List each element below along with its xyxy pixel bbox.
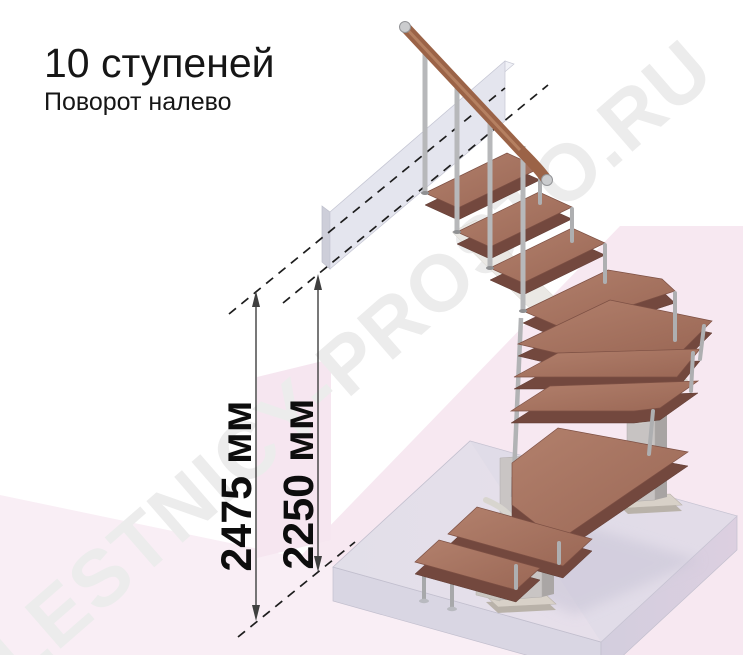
staircase-diagram: LESTNICY-PROSTO.RU 2475 мм 2250 мм [0,0,743,655]
dimension-2250-label: 2250 мм [275,398,323,569]
page-subtitle: Поворот налево [44,88,232,116]
page-title: 10 ступеней [44,40,275,86]
staircase-diagram-page: LESTNICY-PROSTO.RU 2475 мм 2250 мм [0,0,743,655]
dimension-2475-label: 2475 мм [213,400,261,571]
